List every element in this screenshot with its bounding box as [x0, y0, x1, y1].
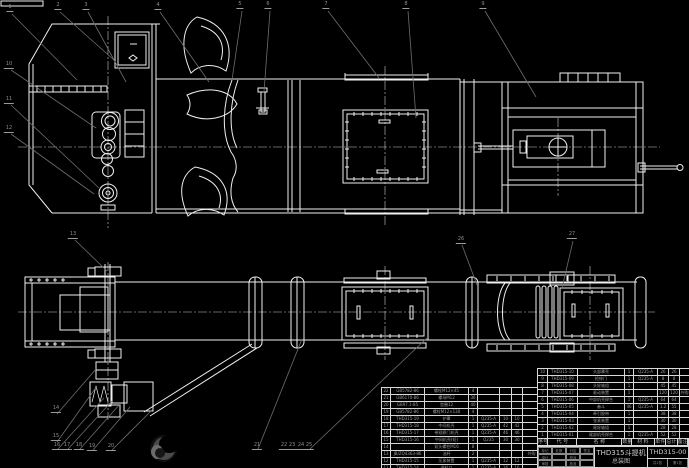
tension-device [92, 110, 144, 210]
sheet-note: 共1张 [648, 459, 668, 468]
bom-row: 19GB5782-86螺栓M12×1304 [382, 409, 541, 416]
head-housing [29, 24, 160, 213]
doc-type: 总装图 [612, 458, 630, 466]
title-main: THD315斗提机 总装图 [595, 447, 648, 467]
bom-table-right: 10THD315-10头部罩壳1Q235-A26269THD315-09检修门1… [537, 368, 689, 439]
signature-cell: 审核 [538, 460, 552, 467]
bom-row: 16THD315-17带观察门机壳1Q235-A4646 [382, 430, 541, 437]
bom-row: 4THD315-04牵引胶带13838 [538, 411, 689, 418]
logo-crescent-cut [155, 448, 165, 458]
bom-right-body: 10THD315-10头部罩壳1Q235-A26269THD315-09检修门1… [538, 369, 689, 439]
head-plan [25, 264, 121, 362]
bom-row: 20GB97.1-85垫圈1240 [382, 402, 541, 409]
bom-row: 14双头螺柱M168 [382, 444, 541, 451]
bucket-profiles [182, 17, 237, 216]
bom-row: 9THD315-09检修门1Q235-A88 [538, 376, 689, 383]
drive-unit [90, 362, 153, 417]
bom-header-cell: 序号 [538, 439, 548, 445]
bom-row: 12THD315-15压紧装置1Q235-A1212 [382, 458, 541, 465]
bom-header-cell: 单件 [655, 439, 666, 445]
signature-cell [580, 460, 594, 467]
signature-cell: 标记 [538, 447, 552, 454]
bom-row: 18THD315-19护罩1Q235-A1010 [382, 416, 541, 423]
upper-elevation-view [18, 16, 683, 228]
signature-cell: 设计 [538, 454, 552, 461]
bom-left-body: 22GB5782-86螺栓M12×45421GB6170-86螺母M123620… [382, 388, 541, 468]
signature-cell [552, 454, 566, 461]
title-right: THD315-00 共1张 第1张 [648, 447, 688, 467]
signature-cell: 处数 [552, 447, 566, 454]
head-top-box [115, 32, 149, 68]
bom-row: 5THD315-05畚斗46Q235-A1.255 [538, 404, 689, 411]
bom-row: 3THD315-03张紧装置13030 [538, 418, 689, 425]
bom-header-cell: 名 称 [577, 439, 622, 445]
bom-header-row: 序号代 号名 称数量材 料单件总计备注 [537, 438, 689, 446]
support-brace [144, 344, 257, 416]
scale-note: 第1张 [668, 459, 688, 468]
signature-cell: 签名 [580, 447, 594, 454]
bom-row: 17THD315-18中间机壳1Q235-A4242 [382, 423, 541, 430]
bom-header-cell: 代 号 [548, 439, 577, 445]
title-block: 标记处数分区签名设计校对审核批准 THD315斗提机 总装图 THD315-00… [537, 446, 689, 468]
bom-row: 7THD315-07驱动装置1120120外购 [538, 390, 689, 397]
bom-header-cell: 数量 [622, 439, 631, 445]
bom-row: 2THD315-02尾轮轴组12828 [538, 425, 689, 432]
bolt-detail [256, 88, 269, 114]
signature-cell [552, 460, 566, 467]
bom-row: 10THD315-10头部罩壳1Q235-A2626 [538, 369, 689, 376]
bom-row: 21GB6170-86螺母M1236 [382, 395, 541, 402]
signature-cell: 批准 [566, 460, 580, 467]
bom-row: 22GB5782-86螺栓M12×454 [382, 388, 541, 395]
product-title: THD315斗提机 [596, 449, 645, 458]
callout-leaders [11, 11, 573, 450]
signature-cell: 校对 [566, 454, 580, 461]
bom-header-cell: 总计 [666, 439, 677, 445]
bom-row: 6THD315-06中部机壳焊合1Q235-A6464 [538, 397, 689, 404]
watermark-logo [150, 435, 177, 462]
tail-station [460, 73, 683, 215]
bom-row: 13JB/ZQ4363-86油杯2外购 [382, 451, 541, 458]
inspection-door-upper [343, 73, 428, 214]
signature-cell: 分区 [566, 447, 580, 454]
centerlines-upper [18, 16, 660, 228]
cad-drawing-sheet: 1234567891011121314151617181920212223242… [0, 0, 689, 468]
drawing-number: THD315-00 [648, 447, 688, 459]
signature-grid: 标记处数分区签名设计校对审核批准 [538, 447, 595, 467]
sheet-info-row: 共1张 第1张 [648, 459, 688, 468]
bom-header-cell: 备注 [678, 439, 688, 445]
bom-row: 8THD315-08头轮轴组14545 [538, 383, 689, 390]
bom-table-left: 22GB5782-86螺栓M12×45421GB6170-86螺母M123620… [381, 387, 541, 468]
sheet-frame-corner [1, 1, 43, 6]
bom-row: 15THD315-16中间机壳(短)1Q2353030 [382, 437, 541, 444]
bom-header-cell: 材 料 [632, 439, 655, 445]
bom-row: 11THD315-14进料口1Q235-A1616 [382, 465, 541, 468]
signature-cell [580, 454, 594, 461]
